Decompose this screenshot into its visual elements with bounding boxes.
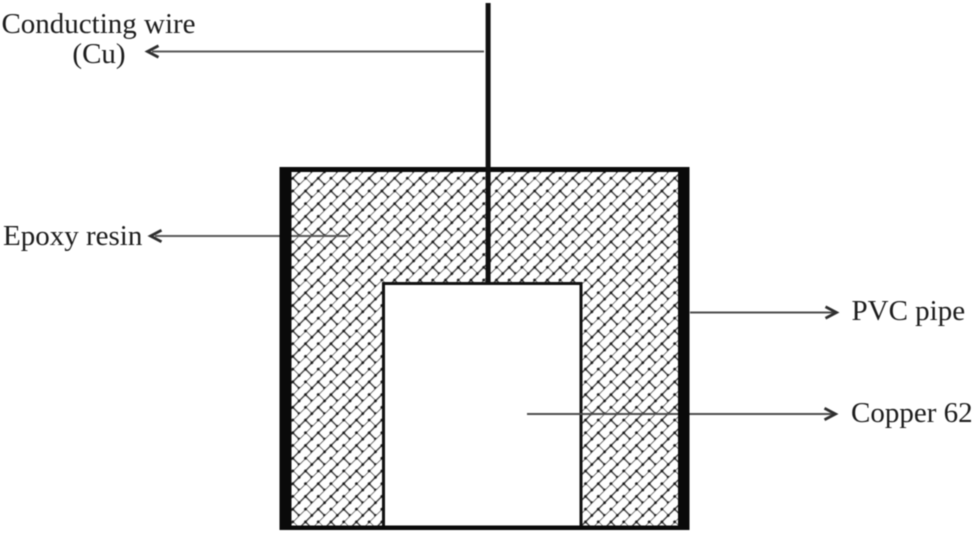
svg-text:(Cu): (Cu) xyxy=(72,38,125,70)
svg-text:Conducting wire: Conducting wire xyxy=(1,8,195,40)
svg-text:PVC pipe: PVC pipe xyxy=(852,295,966,327)
svg-text:Copper 62: Copper 62 xyxy=(851,397,973,429)
svg-text:Epoxy resin: Epoxy resin xyxy=(3,220,143,252)
